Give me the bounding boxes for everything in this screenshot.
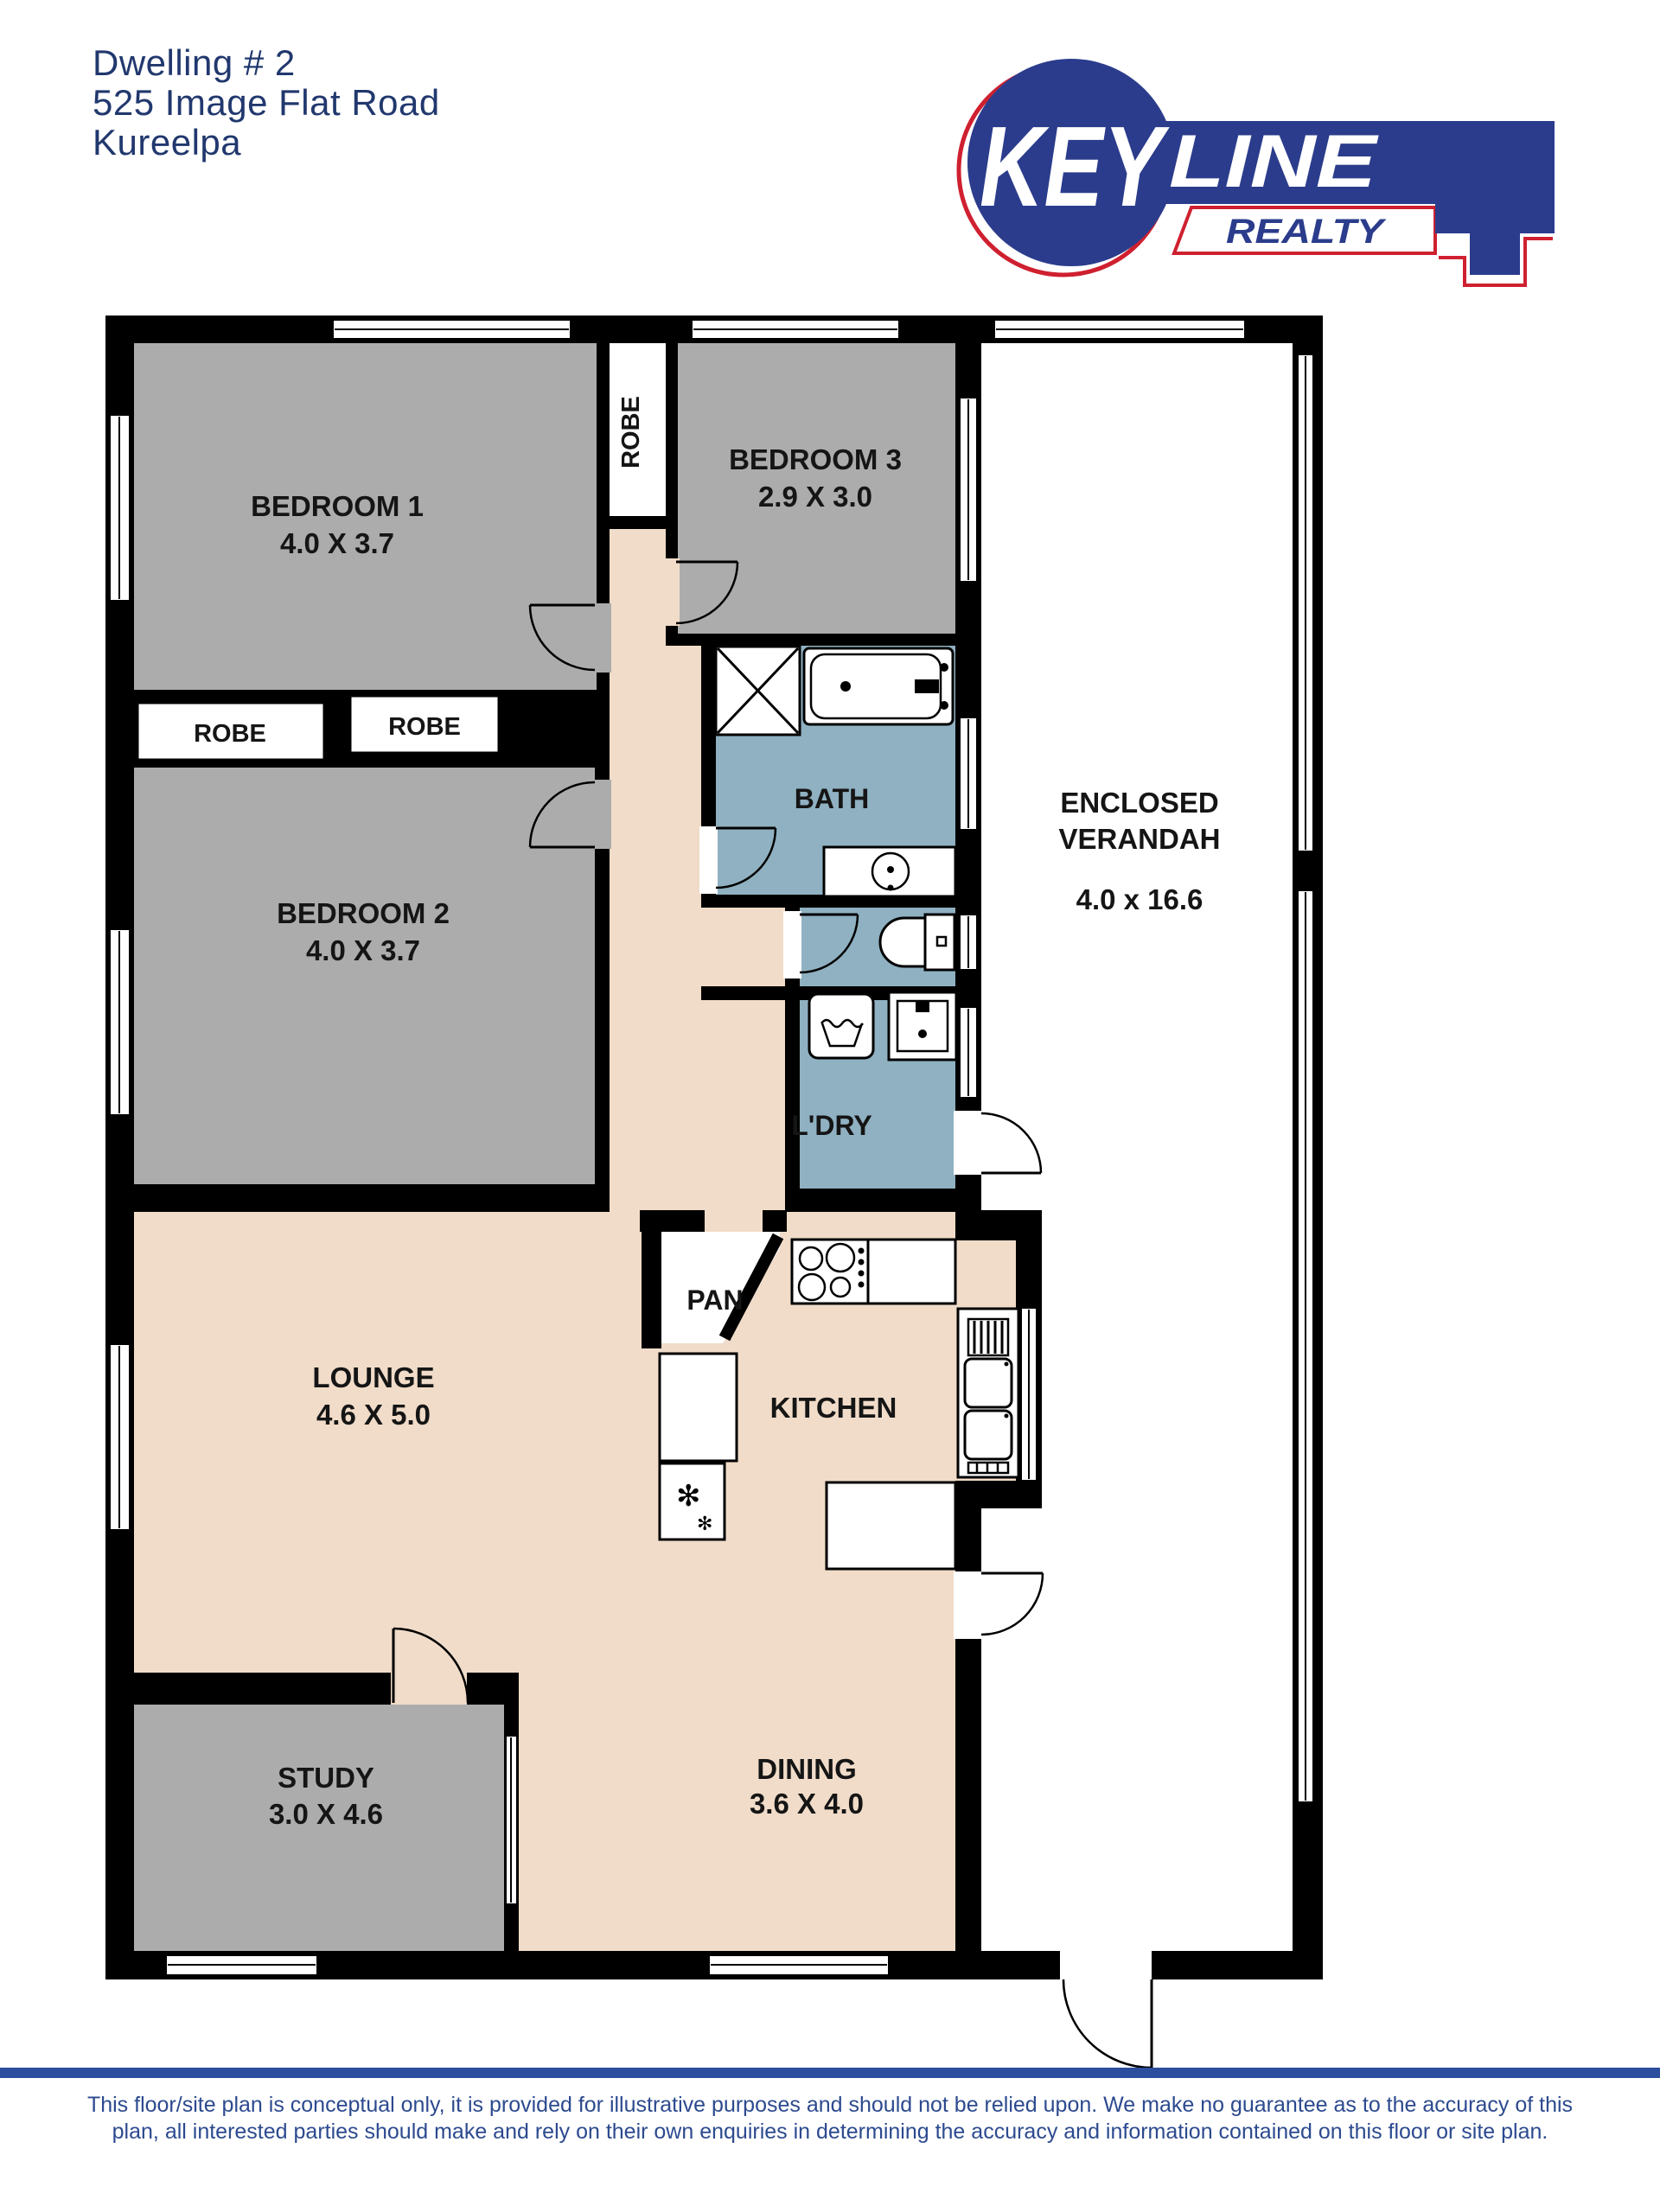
lounge-label: LOUNGE bbox=[312, 1361, 434, 1393]
window bbox=[110, 1344, 130, 1530]
bedroom1-label: BEDROOM 1 bbox=[251, 490, 424, 522]
washing-machine-icon bbox=[809, 994, 873, 1058]
page: Dwelling # 2 525 Image Flat Road Kureelp… bbox=[0, 0, 1660, 2212]
bedroom2-dims: 4.0 X 3.7 bbox=[306, 934, 420, 966]
window bbox=[960, 1007, 977, 1098]
window bbox=[166, 1955, 317, 1975]
window bbox=[692, 320, 899, 339]
window bbox=[110, 415, 130, 601]
disclaimer-line-2: plan, all interested parties should make… bbox=[0, 2119, 1660, 2145]
laundry-tub-icon bbox=[889, 992, 956, 1060]
dining-label: DINING bbox=[757, 1753, 857, 1785]
pantry-label: PAN bbox=[686, 1284, 743, 1316]
robe-left-label: ROBE bbox=[194, 720, 266, 748]
verandah-label-1: ENCLOSED bbox=[1060, 787, 1218, 819]
fridge-icon: ✻ ✻ bbox=[660, 1463, 725, 1539]
disclaimer-line-1: This floor/site plan is conceptual only,… bbox=[0, 2092, 1660, 2119]
floor-plan: ✻ ✻ bbox=[0, 0, 1660, 2212]
window bbox=[960, 717, 977, 830]
window bbox=[960, 398, 977, 582]
bedroom3-label: BEDROOM 3 bbox=[729, 443, 902, 475]
door-dining-verandah bbox=[954, 1571, 1043, 1639]
window bbox=[1298, 890, 1313, 1802]
laundry-label: L'DRY bbox=[791, 1110, 872, 1141]
window bbox=[333, 320, 571, 339]
bedroom1-dims: 4.0 X 3.7 bbox=[280, 527, 394, 559]
study-label: STUDY bbox=[278, 1762, 374, 1794]
window bbox=[709, 1955, 889, 1975]
verandah-label-2: VERANDAH bbox=[1058, 823, 1220, 855]
svg-text:✻: ✻ bbox=[697, 1514, 712, 1535]
verandah-dims: 4.0 x 16.6 bbox=[1076, 883, 1203, 915]
svg-text:✻: ✻ bbox=[676, 1479, 701, 1514]
window bbox=[506, 1736, 517, 1904]
bath-label: BATH bbox=[795, 783, 870, 814]
oven-tower-icon bbox=[958, 1309, 1018, 1477]
study-dims: 3.0 X 4.6 bbox=[269, 1798, 383, 1830]
room-bedroom-2 bbox=[134, 768, 597, 1184]
vanity-basin-icon bbox=[824, 847, 955, 896]
bedroom3-dims: 2.9 X 3.0 bbox=[758, 481, 872, 513]
bathtub-icon bbox=[804, 648, 953, 724]
window bbox=[994, 320, 1245, 339]
shower-icon bbox=[716, 647, 800, 735]
window bbox=[1298, 354, 1313, 851]
window bbox=[110, 929, 130, 1115]
lounge-dims: 4.6 X 5.0 bbox=[316, 1399, 431, 1431]
window bbox=[960, 915, 977, 970]
robe-top-label: ROBE bbox=[617, 396, 645, 469]
toilet-icon bbox=[880, 915, 954, 970]
window bbox=[1021, 1308, 1037, 1481]
dining-dims: 3.6 X 4.0 bbox=[750, 1788, 864, 1820]
door-verandah-exterior bbox=[1060, 1949, 1152, 2068]
bedroom2-label: BEDROOM 2 bbox=[277, 897, 450, 929]
cooktop-icon bbox=[792, 1240, 868, 1304]
door-laundry-verandah bbox=[954, 1111, 1041, 1175]
disclaimer: This floor/site plan is conceptual only,… bbox=[0, 2092, 1660, 2145]
footer-divider bbox=[0, 2068, 1660, 2078]
kitchen-label: KITCHEN bbox=[770, 1392, 897, 1424]
robe-right-label: ROBE bbox=[388, 713, 461, 741]
